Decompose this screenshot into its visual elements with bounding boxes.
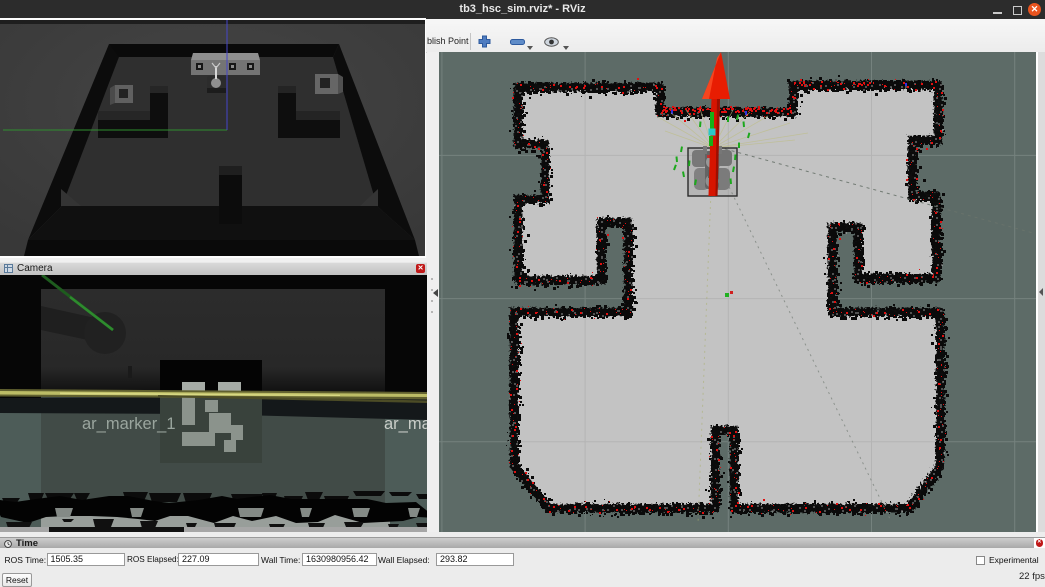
svg-text:ar_marker_1: ar_marker_1 — [82, 415, 176, 433]
svg-text:ar_ma: ar_ma — [384, 415, 427, 433]
